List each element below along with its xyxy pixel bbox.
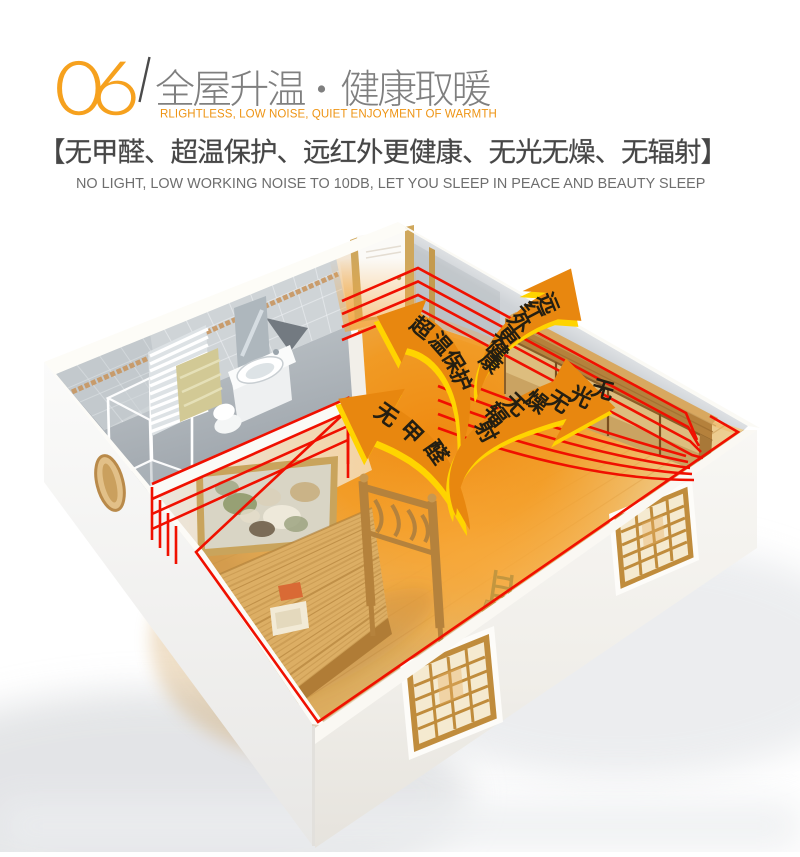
svg-text:NO LIGHT, LOW WORKING NOISE TO: NO LIGHT, LOW WORKING NOISE TO 10DB, LET…: [76, 176, 705, 192]
svg-text:RLIGHTLESS, LOW NOISE, QUIET E: RLIGHTLESS, LOW NOISE, QUIET ENJOYMENT O…: [160, 109, 497, 121]
